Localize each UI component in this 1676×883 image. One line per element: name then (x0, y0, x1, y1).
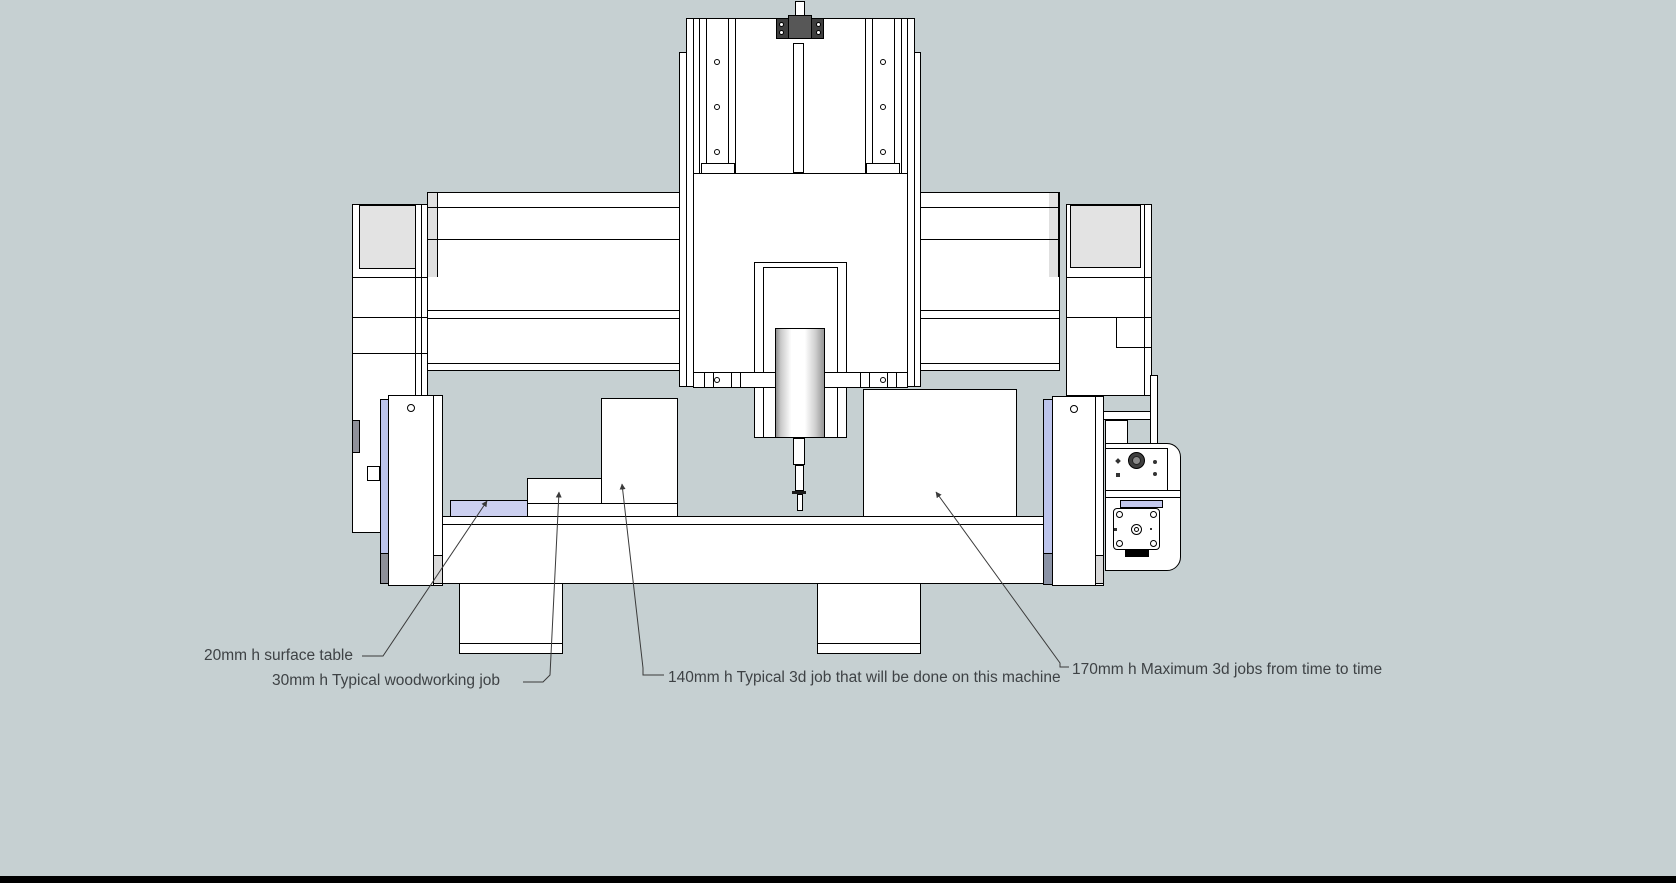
cad-viewport: 20mm h surface table 30mm h Typical wood… (0, 0, 1676, 883)
bolt-hole (779, 22, 784, 27)
annotation-30mm-job[interactable]: 30mm h Typical woodworking job (272, 671, 500, 690)
z-leadscrew[interactable] (793, 43, 804, 173)
rail-foot-right (866, 163, 900, 174)
strip-line (731, 372, 732, 388)
extrusion-line (352, 277, 428, 278)
extrusion-line (427, 363, 680, 364)
column-right-inset-panel (1070, 205, 1141, 268)
beam-left-end-shade (428, 193, 438, 277)
motor-screw (1150, 511, 1157, 518)
plate-hole (407, 404, 415, 412)
tool-bit[interactable] (797, 494, 803, 511)
annotation-140mm-job[interactable]: 140mm h Typical 3d job that will be done… (668, 668, 1061, 687)
extrusion-line (1066, 317, 1152, 318)
extrusion-line (427, 207, 680, 208)
bolt-hole (714, 149, 720, 155)
motor-spacer (1120, 500, 1163, 508)
strip-line (740, 372, 741, 388)
motor-mount-arm (1103, 411, 1151, 420)
gantry-beam-right[interactable] (920, 192, 1060, 371)
extrusion-line (920, 310, 1060, 311)
side-plate-left-strip-block (433, 555, 443, 584)
strip-line (860, 372, 861, 388)
z-rail-left (706, 18, 707, 173)
extrusion-line (1116, 347, 1152, 348)
side-plate-right[interactable] (1052, 396, 1096, 586)
z-rail-left (728, 18, 729, 173)
column-left-inset-panel (359, 205, 416, 269)
extrusion-line (920, 318, 1060, 319)
z-rail-right (865, 18, 866, 173)
extrusion-line (352, 353, 428, 354)
bolt-hole (816, 22, 821, 27)
bed-top-line (433, 524, 1044, 525)
bolt-hole (880, 149, 886, 155)
bed-foot-right[interactable] (817, 643, 921, 654)
panel-screw (1153, 472, 1157, 476)
extrusion-line (352, 317, 428, 318)
annotation-surface-table[interactable]: 20mm h surface table (204, 646, 353, 665)
motor-label (1125, 549, 1149, 557)
bolt-hole (880, 377, 886, 383)
z-motor-mount-block[interactable] (788, 15, 812, 39)
z-rail-right (901, 18, 902, 173)
gantry-beam-left[interactable] (427, 192, 680, 371)
z-rail-right (872, 18, 873, 173)
plate-hole (1070, 405, 1078, 413)
spoilboard[interactable] (527, 503, 678, 517)
rail-foot-left (701, 163, 735, 174)
side-plate-right-strip-block (1095, 555, 1104, 584)
z-rail-left (735, 18, 736, 173)
viewport-bottom-bar (0, 876, 1676, 883)
bolt-hole (779, 30, 784, 35)
spindle[interactable] (775, 328, 825, 438)
motor-shaft (1134, 527, 1139, 532)
connector-plug-center (1132, 456, 1141, 465)
z-motor-shaft[interactable] (795, 1, 805, 16)
frame-line (907, 18, 908, 173)
side-plate-left-clamp (352, 420, 360, 453)
bracket-line (1105, 490, 1181, 491)
side-plate-left[interactable] (388, 395, 434, 586)
extrusion-line (427, 239, 680, 240)
frame-line (693, 18, 694, 173)
bracket-line (1105, 497, 1181, 498)
bed-foot-left[interactable] (459, 643, 563, 654)
bed-beam[interactable] (433, 516, 1044, 584)
panel-screw (1153, 460, 1157, 464)
strip-line (869, 372, 870, 388)
extrusion-line (1144, 204, 1145, 396)
motor-screw (1116, 511, 1123, 518)
extrusion-line (920, 207, 1060, 208)
spindle-collet[interactable] (793, 438, 805, 465)
strip-line (896, 372, 897, 388)
motor-mount-post (1150, 375, 1158, 444)
motor-screw (1150, 540, 1157, 547)
motor-screw (1116, 540, 1123, 547)
z-rail-right (894, 18, 895, 173)
bolt-hole (714, 377, 720, 383)
annotation-170mm-job[interactable]: 170mm h Maximum 3d jobs from time to tim… (1072, 660, 1382, 679)
bed-leg-left[interactable] (459, 583, 563, 644)
workpiece-30mm[interactable] (527, 478, 602, 504)
bolt-hole (714, 104, 720, 110)
extrusion-line (1116, 317, 1117, 347)
side-plate-left-tab (367, 466, 380, 481)
extrusion-line (920, 363, 1060, 364)
workpiece-140mm[interactable] (601, 398, 678, 504)
motor-mark (1114, 528, 1117, 531)
bolt-hole (880, 104, 886, 110)
bolt-hole (880, 59, 886, 65)
strip-line (704, 372, 705, 388)
extrusion-line (427, 318, 680, 319)
bolt-hole (816, 30, 821, 35)
bed-leg-right[interactable] (817, 583, 921, 644)
surface-table[interactable] (450, 500, 528, 517)
spindle-collet-nut[interactable] (795, 465, 804, 491)
bolt-hole (714, 59, 720, 65)
beam-right-end-shade (1049, 193, 1059, 277)
motor-mount-step (1105, 420, 1128, 444)
motor-mark (1150, 528, 1152, 530)
workpiece-170mm[interactable] (863, 389, 1017, 517)
panel-screw (1116, 473, 1120, 477)
strip-line (887, 372, 888, 388)
extrusion-line (427, 310, 680, 311)
z-rail-left (699, 18, 700, 173)
extrusion-line (920, 239, 1060, 240)
extrusion-line (1066, 277, 1152, 278)
